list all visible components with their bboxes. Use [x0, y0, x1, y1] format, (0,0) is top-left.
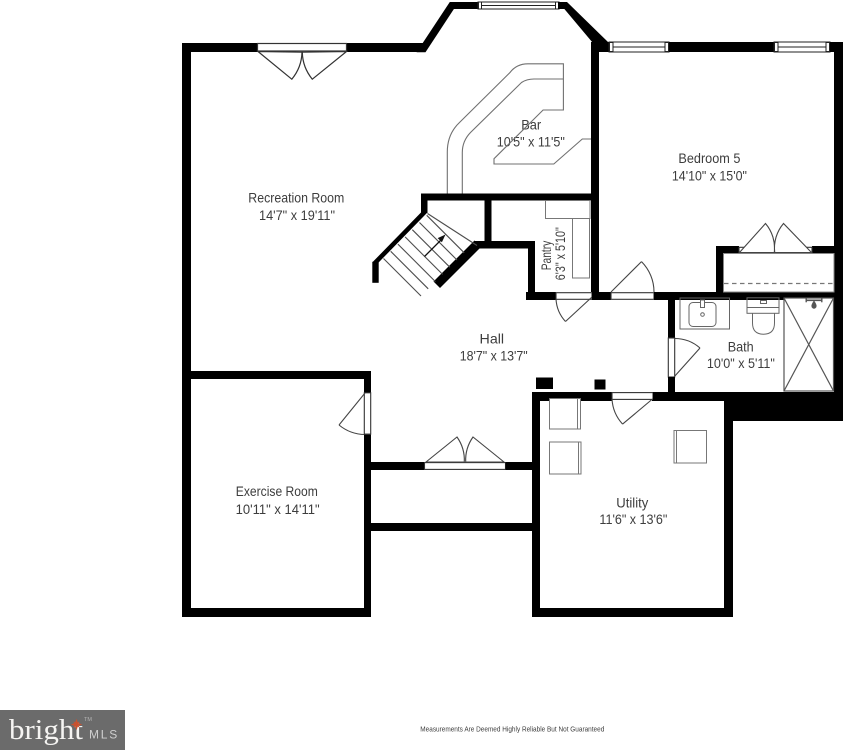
svg-text:Measurements Are Deemed Highly: Measurements Are Deemed Highly Reliable … — [420, 725, 604, 734]
svg-text:18'7" x 13'7": 18'7" x 13'7" — [460, 348, 528, 364]
svg-text:6'3" x 5'10": 6'3" x 5'10" — [552, 227, 568, 280]
svg-text:10'5" x 11'5": 10'5" x 11'5" — [497, 133, 565, 149]
svg-text:bright: bright — [9, 715, 83, 746]
svg-text:Utility: Utility — [616, 494, 648, 510]
svg-text:MLS: MLS — [89, 728, 119, 742]
svg-text:14'7" x 19'11": 14'7" x 19'11" — [259, 207, 335, 223]
svg-text:Recreation Room: Recreation Room — [248, 190, 344, 206]
svg-text:10'0" x 5'11": 10'0" x 5'11" — [707, 355, 775, 371]
svg-text:Hall: Hall — [480, 330, 505, 346]
svg-text:Bar: Bar — [521, 116, 541, 132]
svg-text:Bedroom 5: Bedroom 5 — [678, 150, 740, 166]
svg-text:TM: TM — [84, 717, 92, 723]
svg-text:11'6" x 13'6": 11'6" x 13'6" — [599, 511, 667, 527]
svg-text:14'10" x 15'0": 14'10" x 15'0" — [672, 168, 747, 184]
svg-text:10'11" x 14'11": 10'11" x 14'11" — [236, 501, 320, 517]
svg-text:Exercise Room: Exercise Room — [236, 483, 318, 499]
svg-text:Bath: Bath — [728, 339, 754, 355]
